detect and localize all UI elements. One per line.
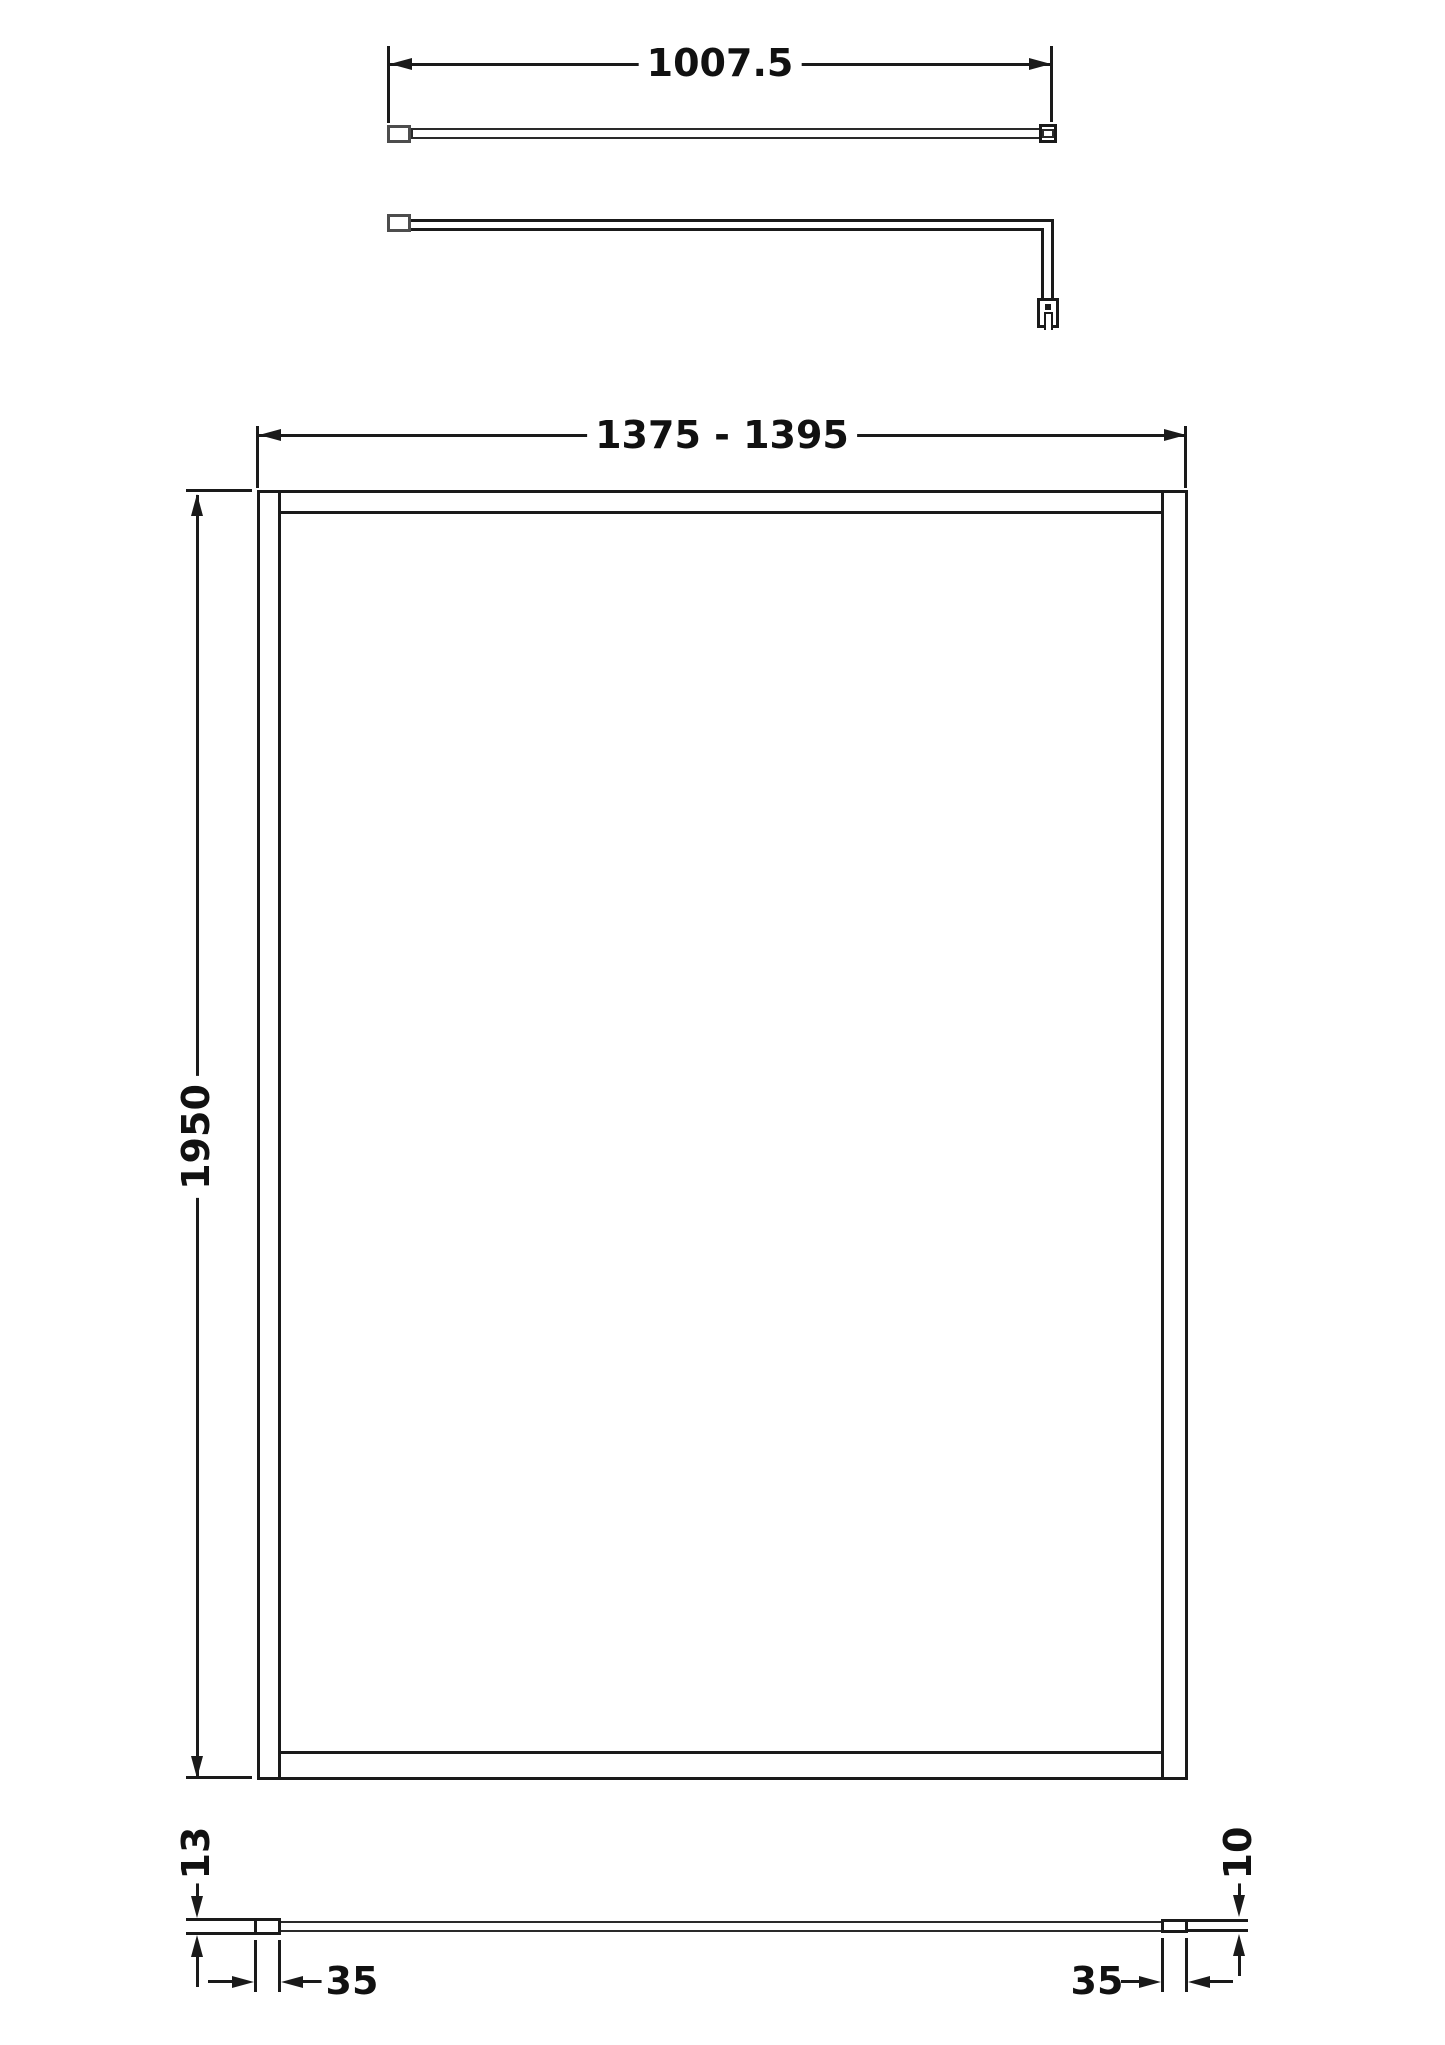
right-depth-extension-bottom: [1188, 1929, 1248, 1932]
right-depth-arrow-up-icon: [1233, 1934, 1245, 1956]
right-channel-inner-line: [1161, 493, 1164, 1777]
bottom-rail-inner-line: [281, 1751, 1161, 1754]
bar-end-fitting-inner: [1042, 129, 1054, 138]
right-width-arrow-right-icon: [1139, 1976, 1161, 1988]
left-depth-line-lower: [196, 1957, 199, 1987]
support-bar-top-view: [411, 128, 1041, 139]
left-channel-depth-label: 13: [176, 1823, 218, 1884]
left-depth-arrow-up-icon: [191, 1935, 203, 1957]
bar-length-dimension-label: 1007.5: [639, 43, 802, 85]
end-profile-plan-right: [1161, 1919, 1188, 1933]
screen-height-dimension-label: 1950: [176, 1076, 218, 1198]
height-dim-arrow-up-icon: [191, 494, 203, 516]
bar-dim-arrow-left-icon: [390, 58, 412, 70]
right-width-line-right: [1210, 1980, 1233, 1983]
technical-drawing-canvas: 1007.5 1375 - 1395 1950 13 35: [0, 0, 1445, 2045]
left-depth-arrow-down-icon: [191, 1896, 203, 1918]
right-profile-width-label: 35: [1067, 1961, 1128, 2003]
height-dim-extension-top: [186, 489, 252, 492]
glass-panel-outer-frame: [257, 490, 1188, 1780]
right-depth-arrow-down-icon: [1233, 1895, 1245, 1917]
right-width-extension-a: [1161, 1938, 1164, 1992]
glass-clamp-slot: [1044, 312, 1053, 330]
screen-width-dimension-label: 1375 - 1395: [587, 415, 857, 457]
bar-side-bottom-line: [411, 228, 1044, 231]
wall-channel-plan-left: [254, 1918, 281, 1935]
left-width-line-left: [208, 1980, 234, 1983]
right-depth-line-lower: [1238, 1956, 1241, 1976]
height-dim-arrow-down-icon: [191, 1756, 203, 1778]
left-width-arrow-right-icon: [232, 1976, 254, 1988]
glass-clamp-screw-icon: [1045, 304, 1051, 310]
right-depth-extension-top: [1188, 1919, 1248, 1922]
right-width-arrow-left-icon: [1188, 1976, 1210, 1988]
glass-panel-plan-strip: [257, 1921, 1188, 1932]
width-dim-arrow-right-icon: [1164, 429, 1186, 441]
width-dim-arrow-left-icon: [259, 429, 281, 441]
left-depth-extension-top: [186, 1918, 254, 1921]
left-channel-inner-line: [278, 493, 281, 1777]
bar-side-drop-inner: [1041, 228, 1044, 300]
left-channel-width-label: 35: [322, 1961, 383, 2003]
bar-wall-bracket-side-view: [387, 214, 411, 232]
bar-side-top-line: [411, 219, 1054, 222]
right-profile-depth-label: 10: [1218, 1823, 1260, 1884]
right-width-line-left: [1121, 1980, 1140, 1983]
left-width-extension-a: [254, 1940, 257, 1992]
bar-dim-arrow-right-icon: [1029, 58, 1051, 70]
bar-wall-bracket-top-view: [387, 125, 411, 143]
top-rail-inner-line: [281, 511, 1161, 514]
bar-side-drop-outer: [1051, 219, 1054, 300]
left-width-arrow-left-icon: [281, 1976, 303, 1988]
